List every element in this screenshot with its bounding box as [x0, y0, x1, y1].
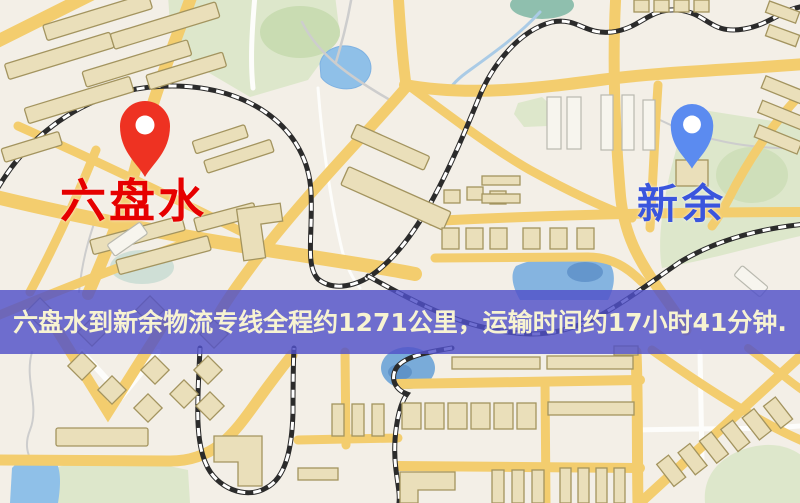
destination-city-label: 新余: [637, 184, 727, 225]
logistics-route-map: 六盘水 新余 六盘水到新余物流专线全程约1271公里，运输时间约17小时41分钟…: [0, 0, 800, 503]
origin-pin-icon: [120, 101, 170, 177]
origin-city-label: 六盘水: [60, 178, 207, 224]
map-graphic: [0, 0, 800, 503]
route-info-banner: 六盘水到新余物流专线全程约1271公里，运输时间约17小时41分钟.: [0, 290, 800, 354]
route-info-text: 六盘水到新余物流专线全程约1271公里，运输时间约17小时41分钟.: [13, 303, 787, 339]
